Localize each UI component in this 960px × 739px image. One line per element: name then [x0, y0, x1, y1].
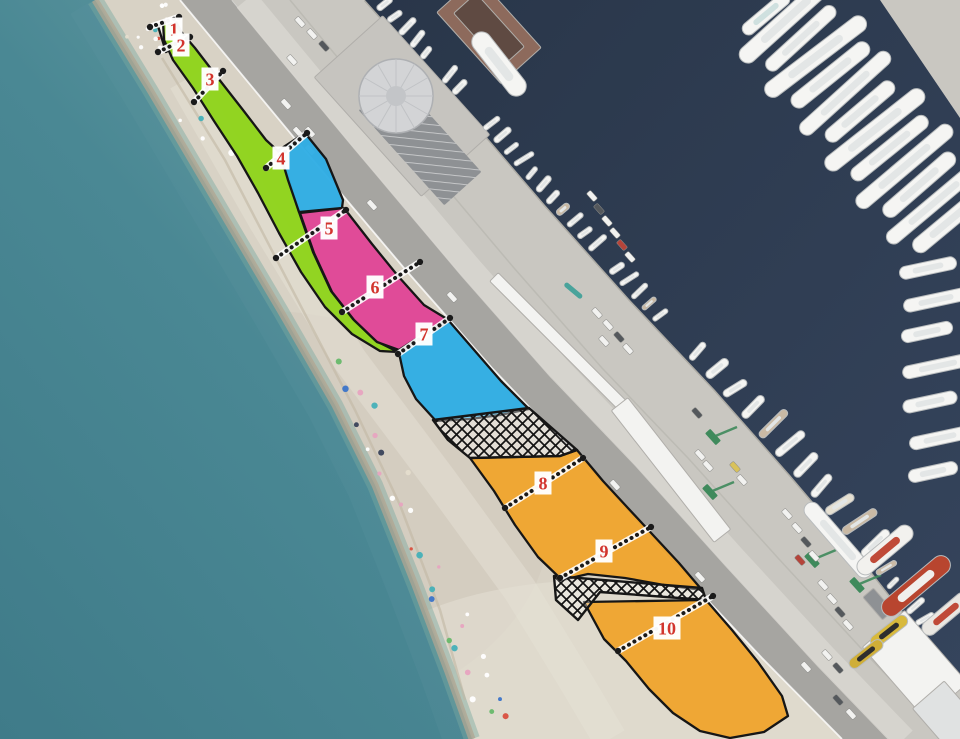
aerial-beach-map: 12345678910: [0, 0, 960, 739]
beach-umbrella: [378, 450, 384, 456]
beach-umbrella: [437, 565, 440, 568]
chain-post: [339, 309, 345, 315]
chain-post: [220, 68, 226, 74]
chain-post: [615, 648, 621, 654]
beach-umbrella: [399, 502, 403, 506]
chain-post: [273, 255, 279, 261]
zone-label-3: 3: [206, 70, 215, 90]
chain-post: [147, 24, 153, 30]
chain-post: [263, 165, 269, 171]
chain-post: [395, 351, 401, 357]
chain-post: [304, 130, 310, 136]
beach-clutter: [164, 3, 168, 7]
beach-umbrella: [390, 496, 395, 501]
beach-umbrella: [354, 422, 359, 427]
beach-umbrella: [465, 670, 471, 676]
beach-clutter: [139, 45, 143, 49]
chain-post: [502, 505, 508, 511]
zone-label-6: 6: [371, 278, 380, 298]
chain-post: [191, 99, 197, 105]
beach-umbrella: [342, 386, 348, 392]
chain-post: [417, 259, 423, 265]
beach-umbrella: [198, 116, 203, 121]
chain-post: [557, 575, 563, 581]
beach-umbrella: [481, 654, 486, 659]
chain-post: [343, 207, 349, 213]
beach-umbrella: [470, 696, 476, 702]
beach-clutter: [153, 37, 158, 42]
beach-umbrella: [405, 470, 410, 475]
beach-umbrella: [429, 586, 435, 592]
beach-umbrella: [498, 697, 502, 701]
zone-label-10: 10: [658, 619, 676, 639]
beach-umbrella: [410, 547, 413, 550]
beach-umbrella: [465, 613, 469, 617]
chain-post: [155, 49, 161, 55]
beach-clutter: [137, 36, 140, 39]
zone-label-8: 8: [539, 474, 548, 494]
beach-umbrella: [357, 390, 363, 396]
chain-post: [710, 593, 716, 599]
beach-umbrella: [336, 358, 342, 364]
zone-label-9: 9: [600, 542, 609, 562]
beach-umbrella: [178, 119, 182, 123]
beach-umbrella: [408, 508, 413, 513]
beach-umbrella: [447, 638, 452, 643]
beach-umbrella: [371, 402, 377, 408]
zone-label-2: 2: [177, 36, 186, 56]
screenshot-root: 12345678910: [0, 0, 960, 739]
beach-umbrella: [451, 645, 457, 651]
beach-umbrella: [460, 624, 464, 628]
beach-umbrella: [372, 433, 377, 438]
beach-umbrella: [489, 709, 494, 714]
beach-umbrella: [201, 136, 205, 140]
zone-label-5: 5: [325, 219, 334, 239]
dome-cap: [386, 86, 406, 106]
zone-label-7: 7: [420, 325, 429, 345]
zone-label-4: 4: [277, 149, 286, 169]
beach-umbrella: [125, 35, 129, 39]
beach-umbrella: [503, 713, 509, 719]
beach-umbrella: [366, 447, 370, 451]
beach-umbrella: [377, 472, 381, 476]
beach-umbrella: [429, 596, 435, 602]
chain-post: [648, 524, 654, 530]
chain-post: [447, 315, 453, 321]
beach-umbrella: [416, 552, 423, 559]
beach-umbrella: [485, 673, 490, 678]
chain-post: [580, 455, 586, 461]
